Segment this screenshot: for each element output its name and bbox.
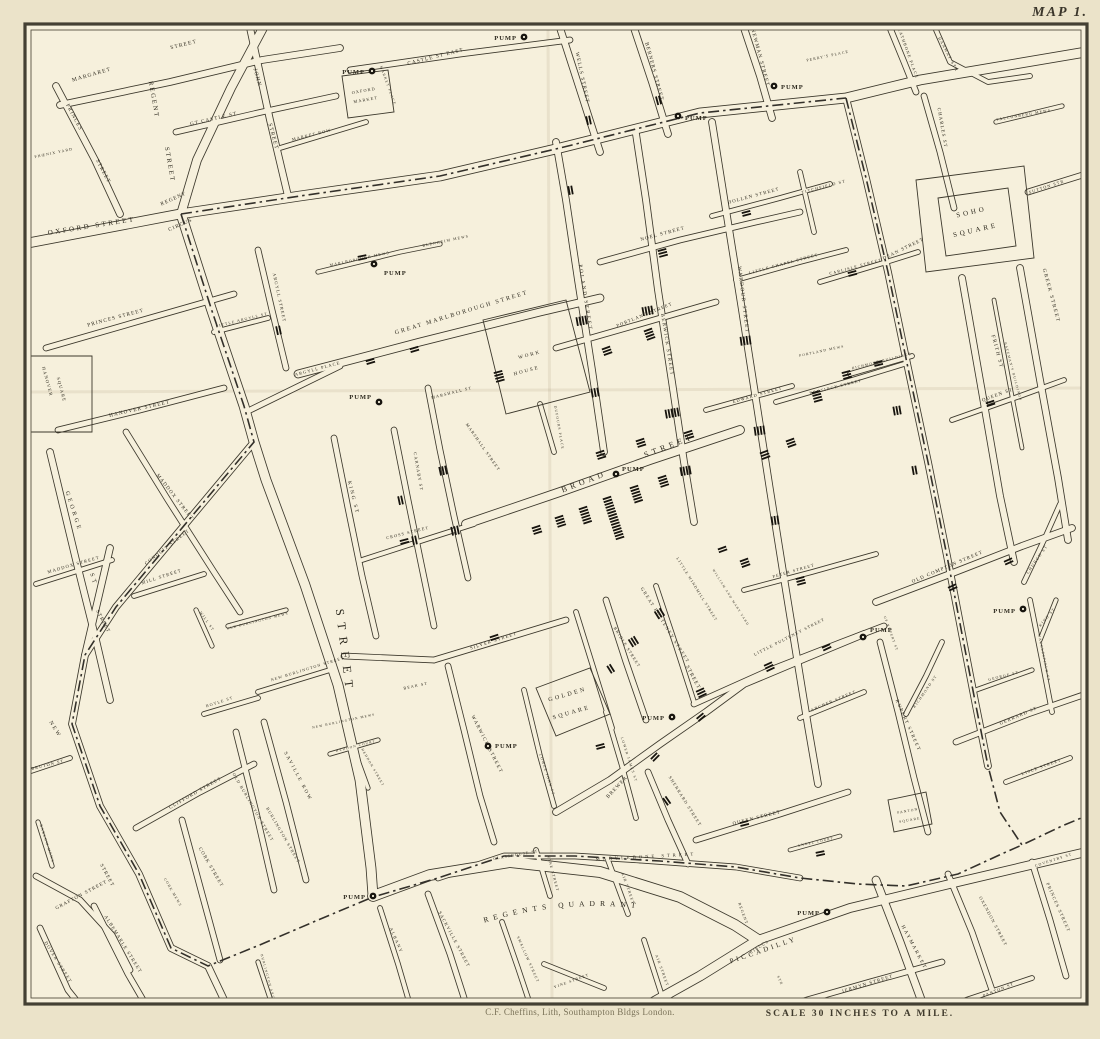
pump-label: PUMP [342, 69, 365, 76]
pump-dot-center [1022, 608, 1024, 610]
pump-label: PUMP [642, 715, 665, 722]
pump-label: PUMP [797, 910, 820, 917]
pump-dot-center [371, 70, 373, 72]
pump-dot-center [826, 911, 828, 913]
pump-label: PUMP [349, 394, 372, 401]
map-title: MAP 1. [960, 5, 1088, 21]
pump-dot-center [372, 895, 374, 897]
pump-label: PUMP [494, 35, 517, 42]
pump-label: PUMP [685, 115, 708, 122]
pump-dot-center [671, 716, 673, 718]
death-bar-cluster [771, 516, 780, 526]
pump-label: PUMP [781, 84, 804, 91]
pump-label: PUMP [622, 466, 645, 473]
pump-label: PUMP [993, 608, 1016, 615]
pump-label: PUMP [495, 743, 518, 750]
pump-label: PUMP [343, 894, 366, 901]
pump-dot-center [373, 263, 375, 265]
lithographer-credit: C.F. Cheffins, Lith, Southampton Bldgs L… [400, 1007, 760, 1017]
pump-dot-center [487, 745, 489, 747]
pump-marker: PUMP [485, 743, 518, 750]
john-snow-cholera-map-page: MARGARETSTREETPRINCESSTREETREGENTSTREETJ… [0, 0, 1100, 1039]
pump-label: PUMP [870, 627, 893, 634]
death-bar-cluster [590, 388, 599, 398]
pump-dot-center [378, 401, 380, 403]
pump-dot-center [862, 636, 864, 638]
pump-dot-center [773, 85, 775, 87]
death-bar-cluster [892, 406, 901, 416]
pump-dot-center [615, 473, 617, 475]
pump-label: PUMP [384, 270, 407, 277]
pump-dot-center [677, 115, 679, 117]
scale-note: SCALE 30 INCHES TO A MILE. [740, 1009, 980, 1019]
map-canvas: MARGARETSTREETPRINCESSTREETREGENTSTREETJ… [0, 0, 1100, 1039]
pump-dot-center [523, 36, 525, 38]
